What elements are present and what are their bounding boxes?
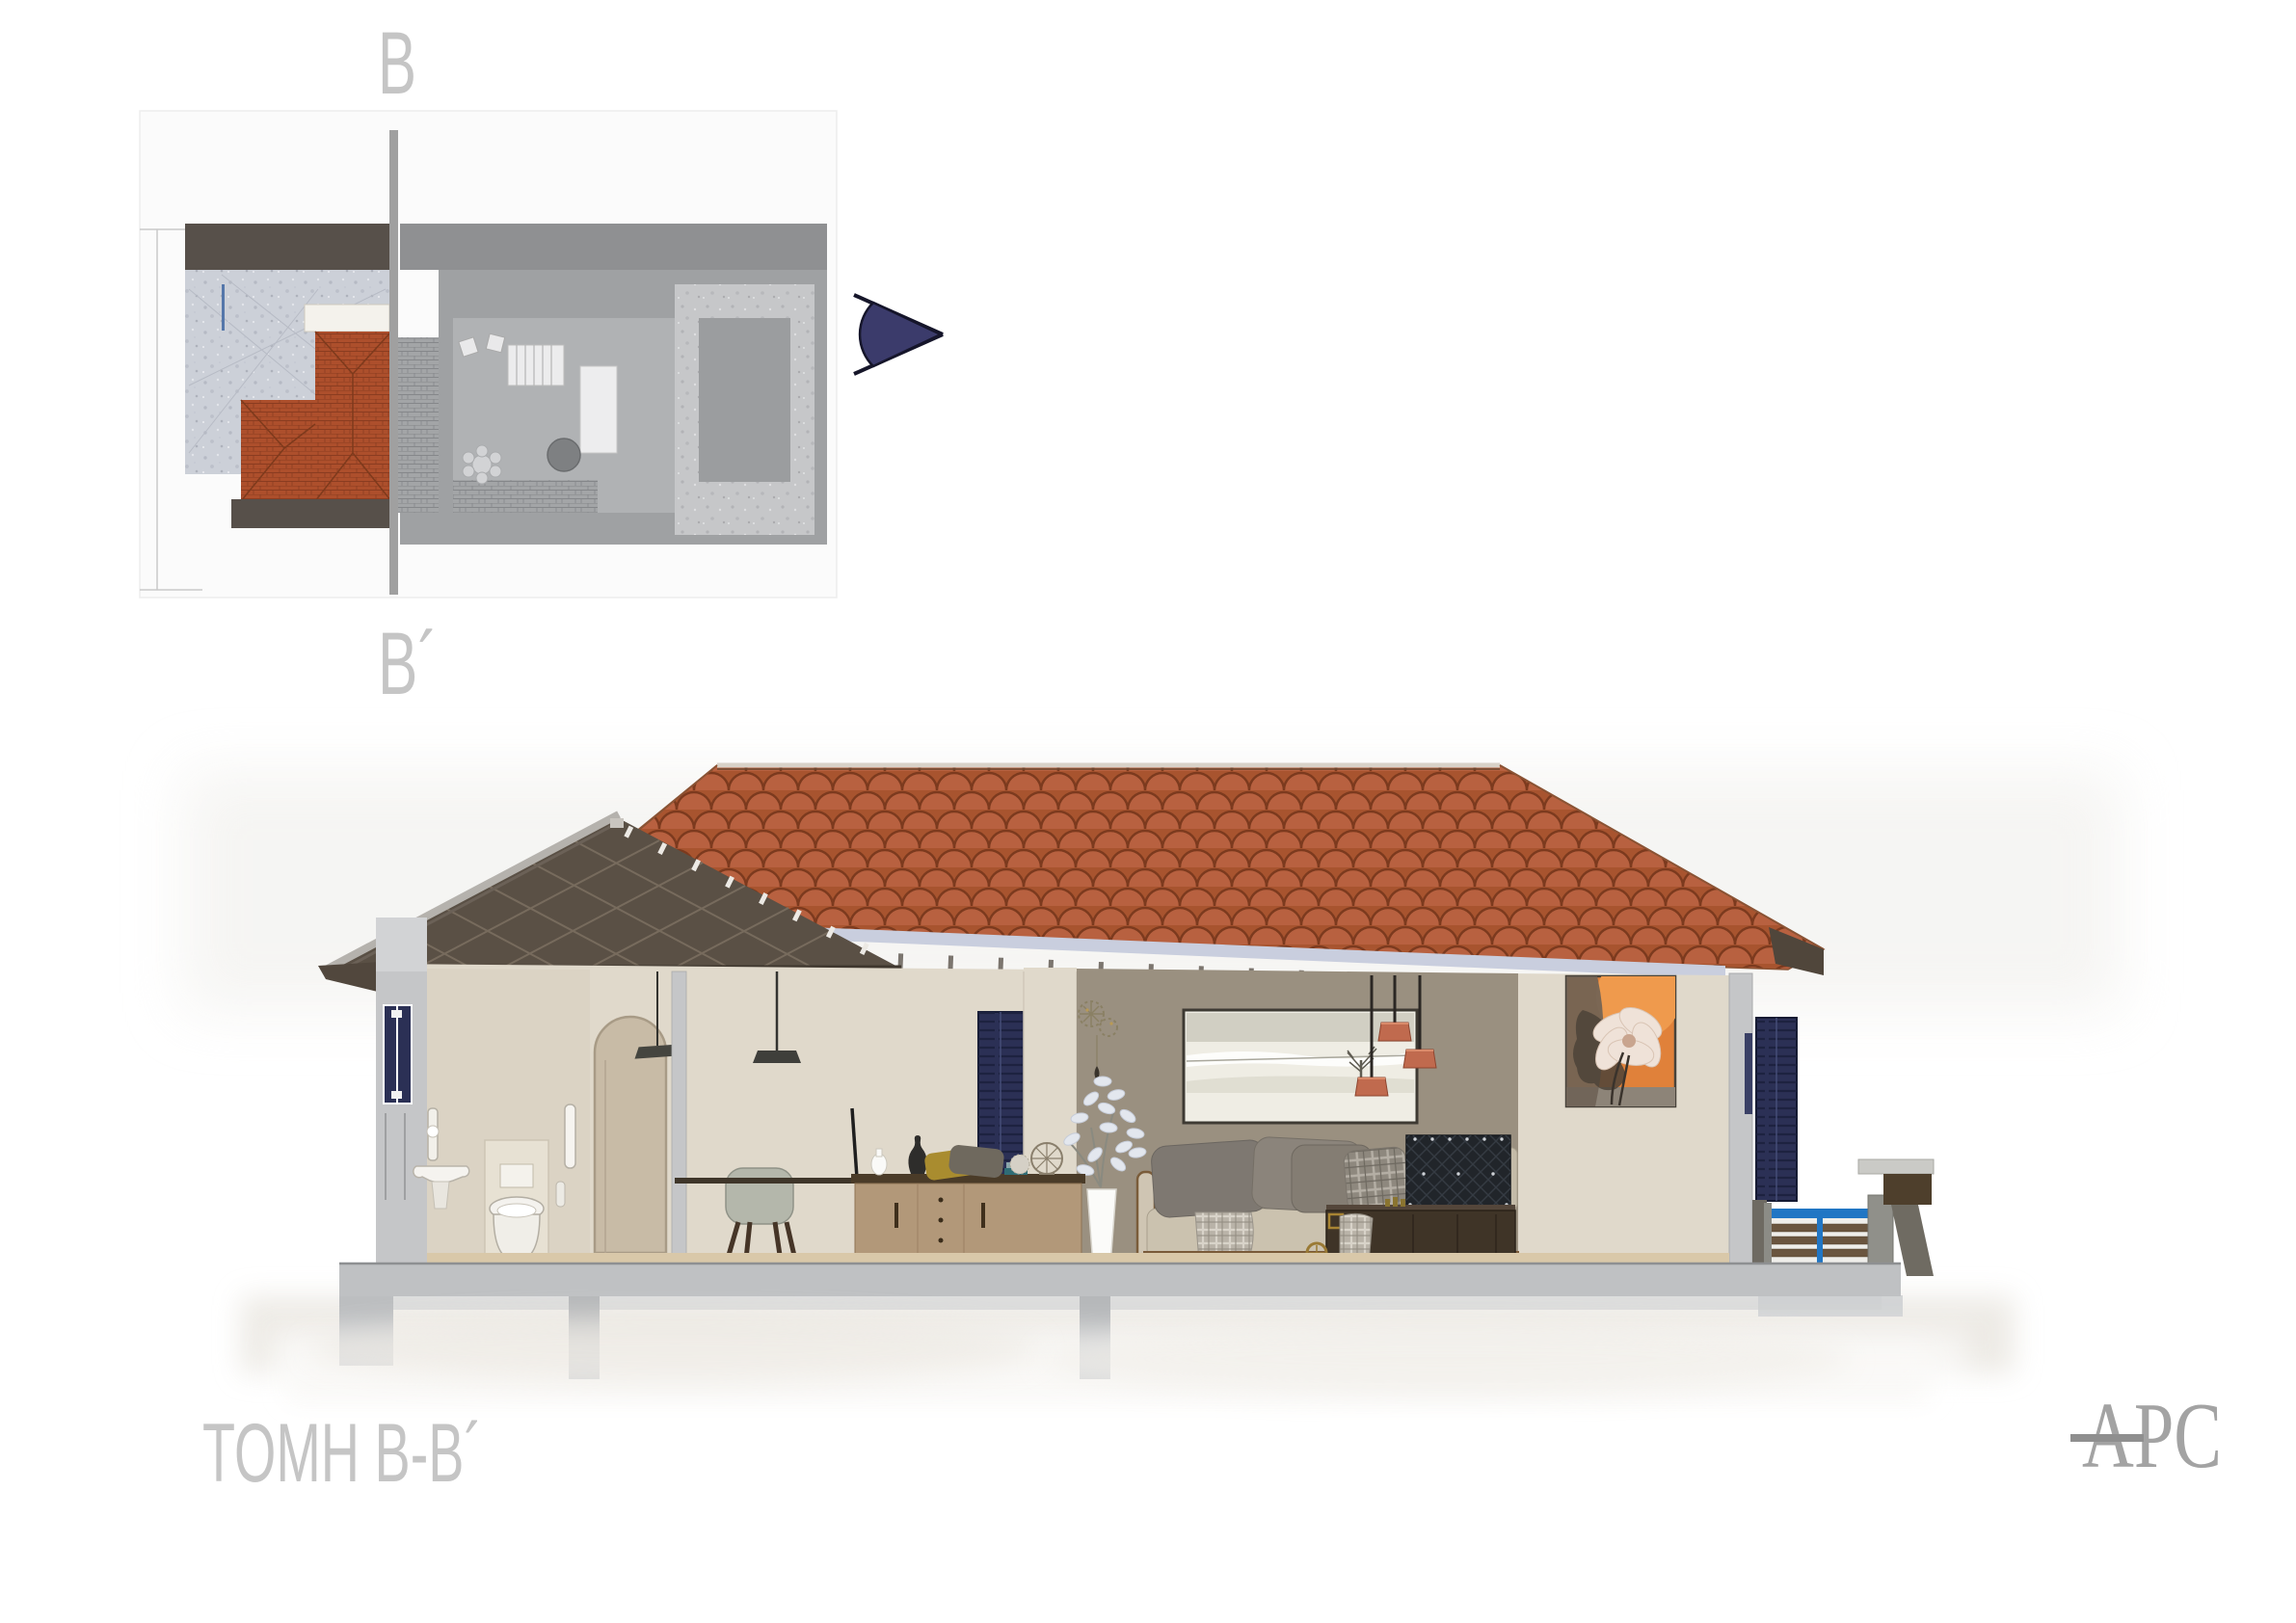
gray-pillow <box>948 1144 1005 1179</box>
plan-section-cut-line <box>389 130 398 595</box>
wheel-decor <box>1031 1143 1062 1174</box>
toilet-brush <box>556 1182 565 1207</box>
grab-bar <box>565 1104 575 1168</box>
toilet-paper-holder <box>427 1108 439 1160</box>
bathroom <box>414 969 590 1269</box>
plan-roof-gray-cut <box>397 337 439 513</box>
sphere-decor <box>1010 1155 1029 1174</box>
plan-label-b-prime: B´ <box>378 615 438 713</box>
flower-artwork <box>1566 954 1681 1106</box>
desk <box>675 1178 858 1184</box>
plan-counter <box>580 366 617 453</box>
cut-wall-middle <box>672 971 686 1265</box>
plan-roof-band-dark <box>185 224 389 270</box>
plan-roof-band-bottom <box>231 499 391 528</box>
plan-label-b: B <box>378 14 416 113</box>
tufted-panel <box>1406 1135 1510 1209</box>
architectural-sheet: B B´ <box>0 0 2296 1623</box>
plaid-pillow <box>1343 1146 1409 1212</box>
section-title: ΤΟΜΗ B-B´ <box>202 1407 482 1500</box>
flush-plate <box>500 1164 533 1187</box>
plan-ridge-strip <box>305 305 389 332</box>
cut-wall-left <box>376 918 427 1265</box>
logo: APC <box>2070 1384 2222 1488</box>
plan-roof-band-gray <box>400 224 827 270</box>
plan-grill-circle <box>547 439 580 471</box>
logo-crossbar <box>2070 1434 2144 1442</box>
foundation-slab <box>339 1264 1901 1296</box>
plan-window-tick <box>222 284 225 331</box>
cut-wall-right <box>1729 973 1752 1265</box>
plan-stairs <box>508 345 564 386</box>
